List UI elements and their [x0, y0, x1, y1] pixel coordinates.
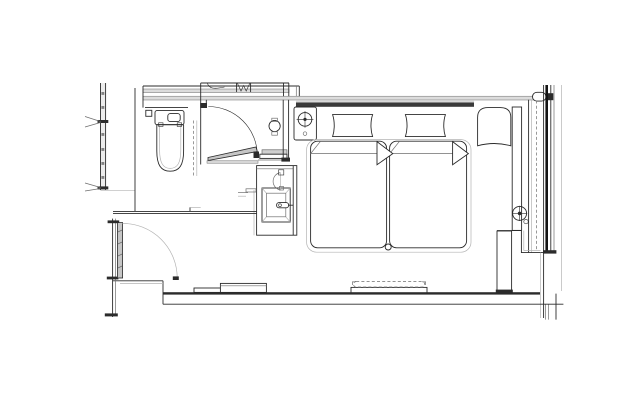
pillow-right [405, 115, 445, 137]
floor-plan-page [0, 0, 640, 400]
pillow-left [333, 115, 373, 137]
nightstand [294, 107, 316, 140]
floor-plan-canvas [0, 0, 640, 400]
lounge-chair [478, 108, 511, 146]
